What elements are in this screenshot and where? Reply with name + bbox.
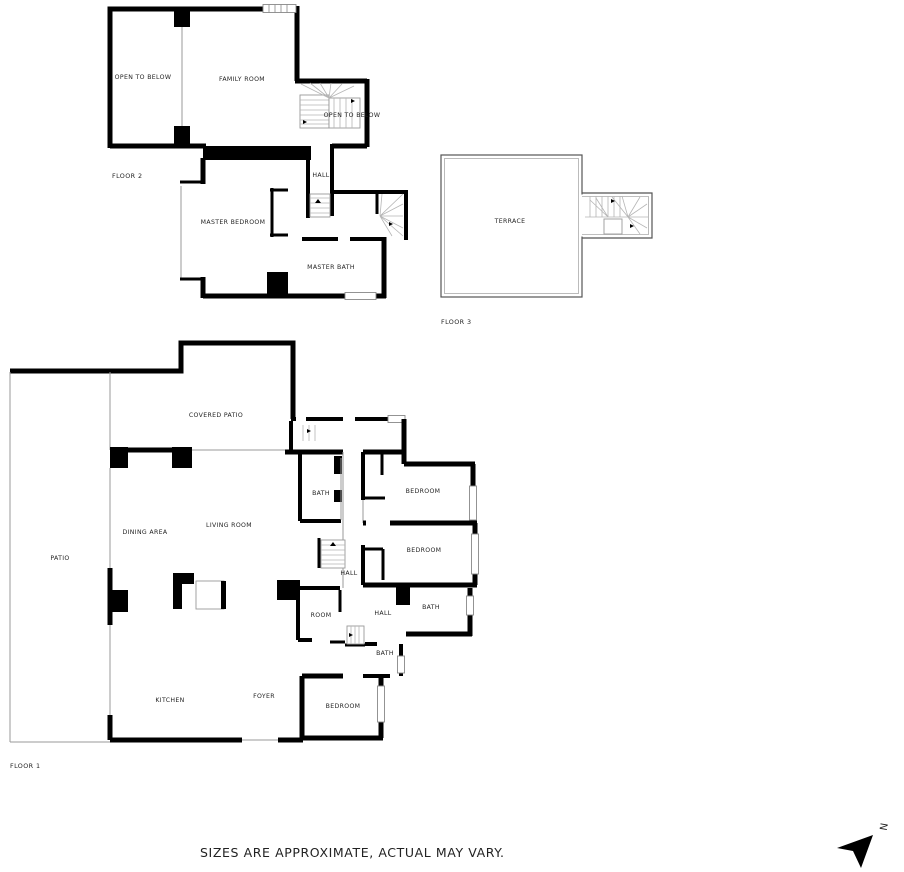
- room-label-covered-patio: COVERED PATIO: [189, 412, 243, 419]
- room-label-bath-south: BATH: [376, 650, 394, 657]
- floor1-walls: [10, 343, 479, 742]
- room-label-terrace: TERRACE: [494, 218, 526, 225]
- room-label-living-room: LIVING ROOM: [206, 522, 252, 529]
- floor1-stairs-main-icon: [319, 538, 345, 568]
- floor2-plan: OPEN TO BELOW FAMILY ROOM OPEN TO BELOW …: [110, 5, 406, 300]
- room-label-patio: PATIO: [50, 555, 69, 562]
- room-label-open-to-below-stairs: OPEN TO BELOW: [324, 112, 381, 119]
- room-label-room: ROOM: [311, 612, 332, 619]
- room-label-bedroom-middle: BEDROOM: [407, 547, 442, 554]
- floorplan-page: OPEN TO BELOW FAMILY ROOM OPEN TO BELOW …: [0, 0, 904, 872]
- room-label-bath-top: BATH: [312, 490, 330, 497]
- floor3-labels: TERRACE FLOOR 3: [441, 218, 525, 326]
- north-label: N: [877, 822, 889, 831]
- floor2-stairs-upper-icon: [300, 83, 360, 128]
- room-label-family-room: FAMILY ROOM: [219, 76, 265, 83]
- room-label-bedroom-top: BEDROOM: [406, 488, 441, 495]
- room-label-bath-east: BATH: [422, 604, 440, 611]
- room-label-kitchen: KITCHEN: [155, 697, 184, 704]
- floor1-label: FLOOR 1: [10, 762, 40, 770]
- floor3-plan: TERRACE FLOOR 3: [441, 155, 652, 326]
- floor2-label: FLOOR 2: [112, 172, 142, 180]
- room-label-master-bath: MASTER BATH: [307, 264, 355, 271]
- room-label-hall-south: HALL: [374, 610, 391, 617]
- floor1-entry-steps-icon: [303, 425, 315, 441]
- floorplan-canvas: OPEN TO BELOW FAMILY ROOM OPEN TO BELOW …: [0, 0, 904, 872]
- floor2-stairs-winder-icon: [380, 194, 403, 236]
- room-label-hall-center: HALL: [340, 570, 357, 577]
- floor1-stairs-lower-icon: [347, 626, 364, 644]
- disclaimer-text: SIZES ARE APPROXIMATE, ACTUAL MAY VARY.: [200, 845, 505, 860]
- room-label-bedroom-south: BEDROOM: [326, 703, 361, 710]
- floor3-label: FLOOR 3: [441, 318, 471, 326]
- floor2-walls: [110, 6, 406, 298]
- room-label-open-to-below-left: OPEN TO BELOW: [115, 74, 172, 81]
- north-arrow-icon: N: [837, 822, 889, 868]
- room-label-dining-area: DINING AREA: [123, 529, 168, 536]
- room-label-foyer: FOYER: [253, 693, 275, 700]
- room-label-master-bedroom: MASTER BEDROOM: [201, 219, 266, 226]
- floor2-stairs-hall-icon: [310, 194, 330, 217]
- floor1-plan: COVERED PATIO PATIO DINING AREA LIVING R…: [10, 343, 479, 770]
- floor3-stairs-icon: [585, 196, 648, 234]
- kitchen-island-icon: [173, 573, 226, 609]
- room-label-hall-floor2: HALL: [312, 172, 329, 179]
